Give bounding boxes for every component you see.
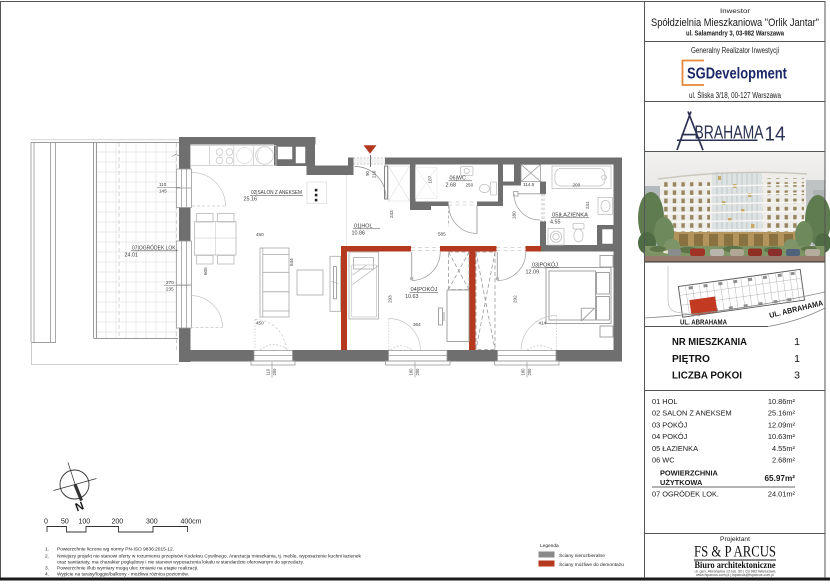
svg-text:01 HOL: 01 HOL [652,397,677,406]
svg-text:300: 300 [146,519,158,526]
svg-text:Projektant: Projektant [720,536,750,543]
svg-text:Powierzchnie i/lub wymiary mog: Powierzchnie i/lub wymiary mogą ulec zmi… [57,566,198,572]
svg-text:4.55: 4.55 [550,220,561,226]
svg-text:270: 270 [166,280,174,285]
svg-text:50: 50 [61,519,69,526]
svg-text:UL. ABRAHAMA: UL. ABRAHAMA [680,318,727,327]
svg-text:06 WC: 06 WC [652,456,675,465]
svg-text:07 OGRÓDEK LOK.: 07 OGRÓDEK LOK. [652,490,719,499]
svg-text:90: 90 [365,171,370,176]
svg-text:4.55m²: 4.55m² [772,444,796,453]
svg-text:03|POKÓJ: 03|POKÓJ [532,262,558,269]
svg-text:1: 1 [794,336,800,348]
svg-text:ul. Śliska 3/18, 00-127 Warsza: ul. Śliska 3/18, 00-127 Warszawa [689,91,782,100]
svg-text:292: 292 [513,295,518,303]
svg-text:180: 180 [521,368,526,376]
svg-text:414: 414 [539,321,547,326]
svg-text:110: 110 [159,182,167,187]
svg-text:24.01: 24.01 [125,253,139,259]
svg-text:Powierzchnie liczone wg normy: Powierzchnie liczone wg normy PN-ISO 983… [57,547,174,553]
svg-text:Generalny Realizator Inwestycj: Generalny Realizator Inwestycji [691,46,779,55]
svg-text:0: 0 [44,519,48,526]
svg-text:02 SALON Z ANEKSEM: 02 SALON Z ANEKSEM [652,409,732,418]
svg-text:107: 107 [428,175,433,183]
svg-text:25.16: 25.16 [244,197,258,203]
svg-text:LICZBA POKOI: LICZBA POKOI [672,371,742,382]
svg-text:110: 110 [266,368,271,375]
svg-text:10.86m²: 10.86m² [768,397,796,406]
svg-text:12.09: 12.09 [526,270,540,276]
svg-text:POWIERZCHNIA: POWIERZCHNIA [660,469,719,478]
svg-text:BRAHAMA: BRAHAMA [695,122,764,143]
svg-text:585: 585 [438,232,446,237]
svg-text:450: 450 [256,232,264,237]
svg-text:oraz sanitariaty, ma charakter: oraz sanitariaty, ma charakter poglądowy… [57,560,304,566]
svg-text:450: 450 [256,321,264,326]
svg-text:200: 200 [573,183,581,188]
svg-text:14: 14 [765,124,786,146]
svg-text:241: 241 [585,201,590,209]
svg-text:293: 293 [388,295,393,303]
svg-text:10.63m²: 10.63m² [768,432,796,441]
svg-text:25.16m²: 25.16m² [768,409,796,418]
svg-text:4.: 4. [45,572,49,578]
svg-text:605: 605 [203,267,208,275]
svg-text:1: 1 [794,353,800,365]
svg-text:UŻYTKOWA: UŻYTKOWA [660,478,703,487]
svg-text:200: 200 [527,368,532,376]
svg-text:100: 100 [79,519,91,526]
svg-text:ul. Salamandry 3, 03-982 Warsz: ul. Salamandry 3, 03-982 Warszawa [686,29,785,38]
svg-text:180: 180 [409,368,414,376]
svg-text:145: 145 [159,189,167,194]
svg-text:3: 3 [794,370,800,382]
svg-text:05 ŁAZIENKA: 05 ŁAZIENKA [652,444,698,453]
svg-text:2.68: 2.68 [446,183,457,189]
svg-text:Legenda: Legenda [540,543,559,549]
svg-text:Wyjście na tarasy/loggie/balko: Wyjście na tarasy/loggie/balkony - możli… [57,572,189,578]
svg-text:www.fsparcus.com.pl | fsparcus: www.fsparcus.com.pl | fsparcus@fsparcus.… [696,573,774,577]
svg-text:24.01m²: 24.01m² [768,490,796,499]
svg-text:03 POKÓJ: 03 POKÓJ [652,420,688,429]
svg-text:243: 243 [389,210,394,218]
svg-text:10.63: 10.63 [405,294,419,300]
svg-text:200: 200 [272,368,277,376]
svg-text:235: 235 [166,287,174,292]
svg-text:Spółdzielnia Mieszkaniowa "Orl: Spółdzielnia Mieszkaniowa "Orlik Jantar" [651,17,819,29]
svg-text:FS & P ARCUS: FS & P ARCUS [694,544,776,561]
svg-text:12.09m²: 12.09m² [768,420,796,429]
svg-text:544: 544 [289,258,294,266]
svg-text:04|POKÓJ: 04|POKÓJ [411,286,438,293]
svg-text:NR MIESZKANIA: NR MIESZKANIA [672,337,747,348]
svg-text:07|OGRÓDEK LOK.: 07|OGRÓDEK LOK. [132,245,177,252]
svg-text:200: 200 [415,368,420,376]
svg-text:Inwestor: Inwestor [720,8,751,15]
svg-text:3.: 3. [45,566,49,572]
svg-text:2.: 2. [45,554,49,560]
svg-text:04 POKÓJ: 04 POKÓJ [652,432,688,441]
svg-text:180: 180 [512,211,517,219]
svg-text:10.86: 10.86 [352,231,366,237]
svg-text:2.68m²: 2.68m² [772,456,796,465]
svg-text:210: 210 [372,170,377,178]
svg-text:114.5: 114.5 [523,182,535,187]
svg-text:SGDevelopment: SGDevelopment [687,66,788,83]
svg-text:1.: 1. [45,547,49,553]
svg-text:200: 200 [112,519,124,526]
svg-text:364: 364 [413,322,421,327]
svg-text:65.97m²: 65.97m² [765,474,796,483]
svg-text:400cm: 400cm [181,519,202,526]
svg-text:250: 250 [466,183,474,188]
svg-text:Niniejszy projekt nie stanowi: Niniejszy projekt nie stanowi oferty w r… [57,554,362,560]
svg-text:PIĘTRO: PIĘTRO [672,354,710,365]
